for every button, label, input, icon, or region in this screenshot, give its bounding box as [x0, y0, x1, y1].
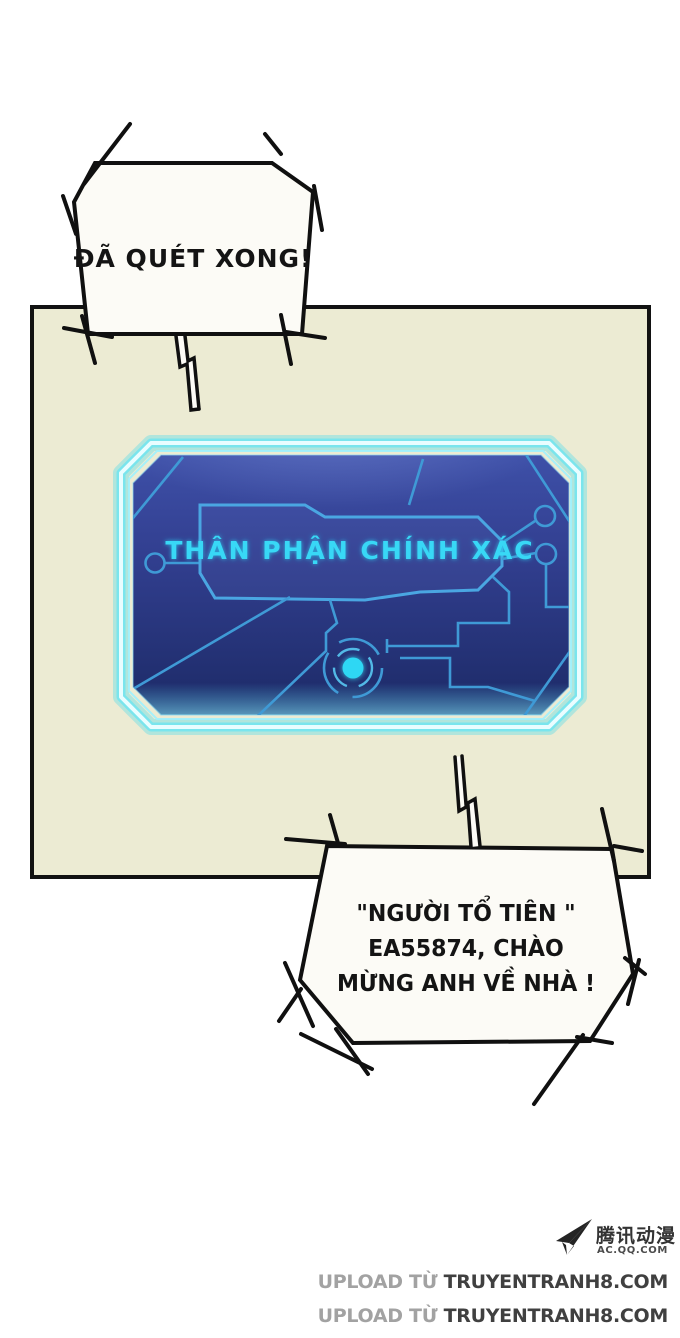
bottom-bubble-line1: "NGƯỜI TỔ TIÊN "	[327, 897, 605, 932]
publisher-site: AC.QQ.COM	[597, 1245, 668, 1256]
top-bubble-text: ĐÃ QUÉT XONG!	[73, 243, 313, 275]
upload-credit-1: UPLOAD TỪ TRUYENTRANH8.COM	[318, 1271, 668, 1293]
comic-page: THÂN PHẬN CHÍNH XÁC	[0, 0, 680, 1338]
upload-credit-site: TRUYENTRANH8.COM	[444, 1305, 668, 1327]
upload-credit-2: UPLOAD TỪ TRUYENTRANH8.COM	[318, 1305, 668, 1327]
publisher-name: 腾讯动漫	[596, 1221, 676, 1248]
upload-credit-prefix: UPLOAD TỪ	[318, 1271, 444, 1293]
target-dot	[343, 658, 364, 679]
scanner-screen: THÂN PHẬN CHÍNH XÁC	[115, 437, 585, 733]
screen-label-text: THÂN PHẬN CHÍNH XÁC	[165, 535, 534, 565]
upload-credit-site: TRUYENTRANH8.COM	[444, 1271, 668, 1293]
upload-credit-prefix: UPLOAD TỪ	[318, 1305, 444, 1327]
bottom-bubble-line3: MỪNG ANH VỀ NHÀ !	[327, 967, 605, 1002]
bottom-bubble-line2: EA55874, CHÀO	[327, 932, 605, 967]
bottom-bubble-text: "NGƯỜI TỔ TIÊN " EA55874, CHÀO MỪNG ANH …	[327, 897, 605, 1002]
screen-bottom-glow	[133, 683, 569, 715]
paper-plane-icon	[552, 1218, 596, 1258]
